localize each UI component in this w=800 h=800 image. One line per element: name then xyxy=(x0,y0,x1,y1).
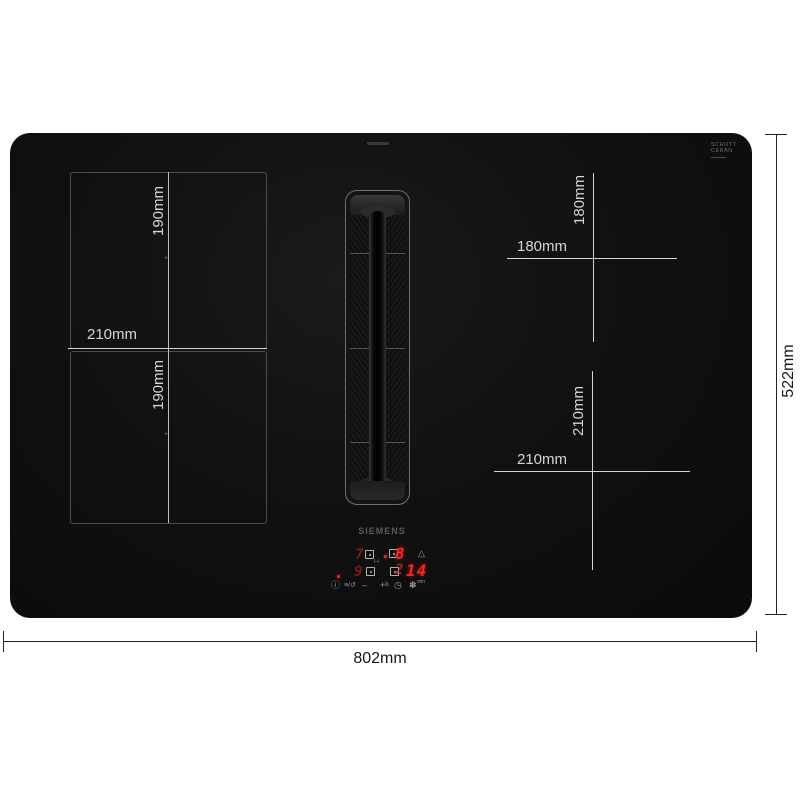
filter-clean-icon: ≡/↺ xyxy=(344,581,356,591)
width-dimension-tick-left xyxy=(3,631,4,652)
zone-level-display-dim: 9 xyxy=(354,564,362,580)
overall-width-label: 802mm xyxy=(330,650,430,668)
dimension-label-zone-top-right-height: 180mm xyxy=(572,170,588,230)
height-dimension-tick-top xyxy=(765,134,787,135)
zone-level-display-dim: 7 xyxy=(355,547,363,563)
schott-ceran-line2: CERAN xyxy=(711,148,737,154)
indicator-led xyxy=(337,575,340,578)
timer-unit-label: min xyxy=(417,579,425,585)
zone-bottom-right-horizontal-line xyxy=(494,471,690,472)
height-dimension-tick-bottom xyxy=(765,614,787,615)
minus-icon: – xyxy=(362,580,367,590)
timer-display: 14 xyxy=(406,561,427,580)
dimension-label-zone-left-width: 210mm xyxy=(87,327,137,343)
height-dimension-line xyxy=(776,135,777,615)
zone-select-sensor xyxy=(366,567,375,576)
pan-position-marker: + xyxy=(164,431,168,438)
zone-width-dimension-line xyxy=(68,348,267,349)
info-power-icon: ⓘ xyxy=(331,580,340,590)
siemens-logo: SIEMENS xyxy=(356,526,408,536)
width-dimension-line xyxy=(3,641,757,642)
dimension-label-zone-top-right-width: 180mm xyxy=(517,239,567,255)
timer-digit-dim: 2 xyxy=(395,562,403,578)
overall-height-label: 522mm xyxy=(780,341,798,401)
downdraft-extractor-module xyxy=(345,190,410,505)
indicator-led xyxy=(384,555,387,558)
extractor-center-bar xyxy=(369,211,386,489)
bridge-zone-icon: I–I xyxy=(374,559,380,565)
schott-ceran-label: SCHOTT CERAN xyxy=(711,142,737,158)
plus-icon: +ᵇ xyxy=(380,580,389,590)
dimension-label-zone-bottom-right-height: 210mm xyxy=(571,381,587,441)
product-dimension-diagram: + + 190mm 210mm 190mm 180mm 180mm 210mm … xyxy=(0,0,800,800)
dimension-label-zone-bottom-right-width: 210mm xyxy=(517,452,567,468)
extractor-bottom-cap xyxy=(350,481,405,500)
pan-position-marker: + xyxy=(164,255,168,262)
model-fine-print xyxy=(367,142,389,145)
residual-heat-warning-icon: △ xyxy=(418,548,425,558)
fan-icon: ✽ xyxy=(409,580,417,590)
zone-top-right-horizontal-line xyxy=(507,258,677,259)
zone-select-sensor xyxy=(365,550,374,559)
timer-clock-icon: ◷ xyxy=(394,580,402,590)
schott-ceran-fine-print xyxy=(711,157,726,158)
power-level-display: 8 xyxy=(395,544,405,563)
width-dimension-tick-right xyxy=(756,631,757,652)
dimension-label-zone-top-left-height: 190mm xyxy=(151,181,167,241)
dimension-label-zone-bottom-left-height: 190mm xyxy=(151,355,167,415)
